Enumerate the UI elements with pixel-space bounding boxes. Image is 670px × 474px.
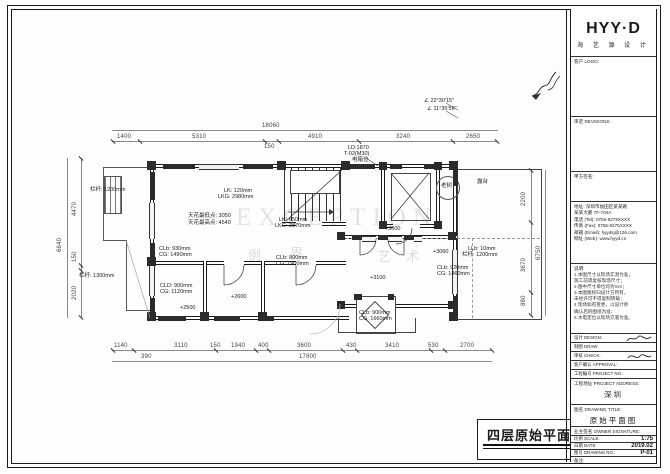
company-logo: HYY·D: [574, 20, 653, 38]
project-address-section: 工程地址 PROJECT ADDRESS: 深圳: [571, 379, 656, 405]
floor-plan: 1806014005310150491032402650114031101501…: [0, 0, 570, 474]
project-address-label: 工程地址 PROJECT ADDRESS:: [574, 381, 653, 387]
dimension-label: 880: [521, 295, 527, 306]
dimension-label: 2020: [72, 286, 78, 300]
dimension-label: 2700: [460, 343, 474, 349]
approval-row: 客户确认 APPROVAL:: [571, 361, 656, 370]
check-label: 审核 CHECK:: [574, 353, 601, 358]
plan-annotation: 天花最高点: 4540: [188, 220, 231, 226]
date-row: 日期 DATE: 2019.02: [571, 443, 656, 450]
company-logo-subtitle: 海 艺 源 设 计: [574, 40, 653, 49]
dimension-label: 390: [141, 354, 152, 360]
dimension-label: 1940: [231, 343, 245, 349]
project-address-value: 深圳: [574, 389, 653, 400]
plan-annotation: +3100: [370, 275, 385, 281]
logo-section: HYY·D 海 艺 源 设 计: [571, 9, 656, 57]
scale-value: 1:75: [641, 436, 653, 442]
plan-annotation: +3060: [433, 249, 448, 255]
dimension-label: 3110: [174, 343, 188, 349]
plan-annotation: CG: 1120mm: [160, 289, 192, 295]
remark-label: 备注:: [574, 458, 584, 464]
dimension-label: 2200: [521, 192, 527, 206]
drawing-no-label: 图号 DRAWING NO.:: [574, 450, 615, 456]
client-logo-section: 客户 LOGO:: [571, 57, 656, 117]
plan-annotation: 老树: [441, 183, 452, 189]
watermark-text: EXCEPTION: [236, 204, 438, 232]
dimension-label: 5310: [192, 134, 206, 140]
dimension-label: 1140: [114, 343, 128, 349]
dimension-label: 4910: [308, 134, 322, 140]
dimension-label: 17800: [299, 354, 317, 360]
drawing-name-label: 图名 DRAWING TITLE:: [574, 407, 653, 413]
plan-annotation: +2600: [231, 294, 246, 300]
dimension-label: 3240: [396, 134, 410, 140]
scale-row: 比例 SCALE: 1:75: [571, 436, 656, 443]
signature-scribble: [626, 352, 652, 361]
plan-annotation: ∠ 22°30'15": [424, 98, 454, 104]
plan-annotation: +2500: [180, 305, 195, 311]
dimension-label: 150: [210, 343, 221, 349]
dimension-label: 2650: [466, 134, 480, 140]
sign-label: 甲方签名:: [574, 174, 594, 179]
dimension-label: 1400: [117, 134, 131, 140]
check-row: 审核 CHECK:: [571, 352, 656, 361]
dimension-label: 430: [346, 343, 357, 349]
revisions-section: 审定 REVISIONS:: [571, 117, 656, 172]
watermark-text: 例: [248, 245, 261, 264]
draw-row: 制图 DRAW:: [571, 343, 656, 352]
note-line: 5.水电定位以现场交底为准。: [574, 315, 653, 321]
plan-annotation: 天花最低点: 3050: [188, 213, 231, 219]
dimension-label: 6750: [536, 246, 542, 260]
project-no-label: 工程编号 PROJECT NO.:: [574, 371, 623, 376]
scale-label: 比例 SCALE:: [574, 436, 600, 442]
dimension-label: 6640: [57, 238, 63, 252]
drawing-name-value: 原始平面图: [574, 415, 653, 426]
plan-annotation: 栏杆: 1200mm: [462, 252, 497, 258]
date-label: 日期 DATE:: [574, 443, 597, 449]
dimension-label: 18060: [262, 123, 280, 129]
plan-annotation: CG: 1660mm: [359, 316, 392, 322]
title-block-divider: [566, 9, 567, 462]
client-logo-label: 客户 LOGO:: [574, 59, 599, 64]
revisions-label: 审定 REVISIONS:: [574, 119, 611, 124]
plan-annotation: 露台: [477, 179, 488, 185]
plan-annotation: LKG: 2980mm: [218, 194, 253, 200]
design-label: 设计 DESIGN:: [574, 335, 602, 340]
plan-annotation: 栏杆: 1200mm: [90, 187, 125, 193]
contact-section: 地址: 深圳市福田区某某路 某某大厦 7F-704A 电话 (Tel): 075…: [571, 202, 656, 264]
drawing-name-section: 图名 DRAWING TITLE: 原始平面图: [571, 405, 656, 427]
plan-annotation: ∠ 11°35'56": [427, 106, 457, 112]
approval-label: 客户确认 APPROVAL:: [574, 362, 617, 367]
notes-section: 说明: 1.本图尺寸以现场实测为准，施工前须复核现场尺寸；2.图中尺寸单位均为m…: [571, 264, 656, 334]
design-row: 设计 DESIGN:: [571, 334, 656, 343]
draw-label: 制图 DRAW:: [574, 344, 598, 349]
owner-signature-section: 业主签名 OWNER SIGNATURE:: [571, 427, 656, 436]
plan-annotation: 栏杆: 1300mm: [79, 273, 114, 279]
notes-list: 1.本图尺寸以现场实测为准，施工前须复核现场尺寸；2.图中尺寸单位均为mm；3.…: [574, 272, 653, 321]
owner-signature-label: 业主签名 OWNER SIGNATURE:: [574, 429, 640, 434]
watermark-text: 术: [406, 246, 419, 265]
dimension-label: 3600: [297, 343, 311, 349]
drawing-no-value: P-01: [640, 450, 653, 456]
watermark-text: 艺: [378, 246, 391, 265]
dimension-label: 400: [258, 343, 269, 349]
dimension-label: 3410: [385, 343, 399, 349]
plan-annotation: 电箱位: [352, 157, 369, 163]
drawing-sheet-page: { "drawing_title": { "text": "四层原始平面图", …: [0, 0, 670, 474]
dimension-label: 150: [72, 251, 78, 262]
title-block: HYY·D 海 艺 源 设 计 客户 LOGO: 审定 REVISIONS: 甲…: [570, 9, 656, 462]
dimension-label: 530: [428, 343, 439, 349]
drawing-no-row: 图号 DRAWING NO.: P-01: [571, 450, 656, 457]
dimension-label: 3670: [521, 258, 527, 272]
remark-row: 备注:: [571, 457, 656, 464]
plan-annotation: CG: 1490mm: [159, 252, 192, 258]
watermark-text: 界: [290, 243, 303, 262]
plan-annotation: CG: 1460mm: [437, 271, 470, 277]
company-web: 网址 (Web): www.hyyd.cn: [574, 236, 653, 242]
dimension-label: 4470: [72, 202, 78, 216]
dimension-label: 150: [264, 144, 275, 150]
sign-section: 甲方签名:: [571, 172, 656, 202]
project-no-row: 工程编号 PROJECT NO.:: [571, 370, 656, 379]
date-value: 2019.02: [631, 443, 653, 449]
signature-scribble: [626, 334, 652, 343]
